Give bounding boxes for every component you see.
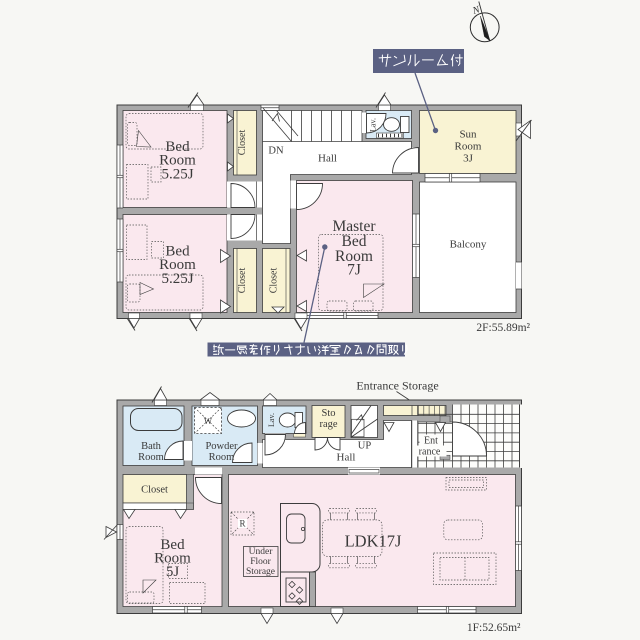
svg-text:2F:55.89m²: 2F:55.89m² [476,322,530,334]
svg-text:Sun: Sun [459,129,477,141]
svg-text:LDK17J: LDK17J [345,532,402,551]
svg-text:Entrance Storage: Entrance Storage [356,379,438,393]
svg-text:Closet: Closet [237,268,248,294]
svg-text:Sto: Sto [321,408,335,419]
svg-text:5.25J: 5.25J [161,167,193,183]
svg-text:3J: 3J [463,153,474,165]
svg-text:Lav.: Lav. [267,413,276,427]
svg-text:Closet: Closet [141,485,168,496]
svg-text:UP: UP [358,441,372,452]
svg-text:Powder: Powder [205,441,238,452]
svg-text:Hall: Hall [318,153,337,165]
svg-text:5J: 5J [166,564,180,580]
svg-text:Floor: Floor [250,557,271,567]
svg-text:Closet: Closet [237,130,248,156]
svg-text:R: R [239,519,245,529]
svg-text:Hall: Hall [337,452,356,464]
svg-text:W: W [204,416,213,426]
svg-text:7J: 7J [347,262,361,279]
svg-text:Room: Room [138,452,164,463]
svg-text:Lav.: Lav. [369,118,378,132]
svg-text:Closet: Closet [269,268,280,294]
svg-text:DN: DN [268,146,284,157]
svg-text:Balcony: Balcony [450,239,487,251]
svg-text:1F:52.65m²: 1F:52.65m² [467,622,521,634]
svg-text:rance: rance [419,447,441,458]
svg-text:Room: Room [455,141,482,153]
svg-text:Ent: Ent [424,436,438,447]
svg-text:Storage: Storage [246,567,275,577]
svg-text:Room: Room [209,452,235,463]
svg-text:Bath: Bath [141,441,162,452]
svg-text:rage: rage [319,419,337,430]
svg-text:Under: Under [249,547,274,557]
svg-text:5.25J: 5.25J [161,271,193,287]
